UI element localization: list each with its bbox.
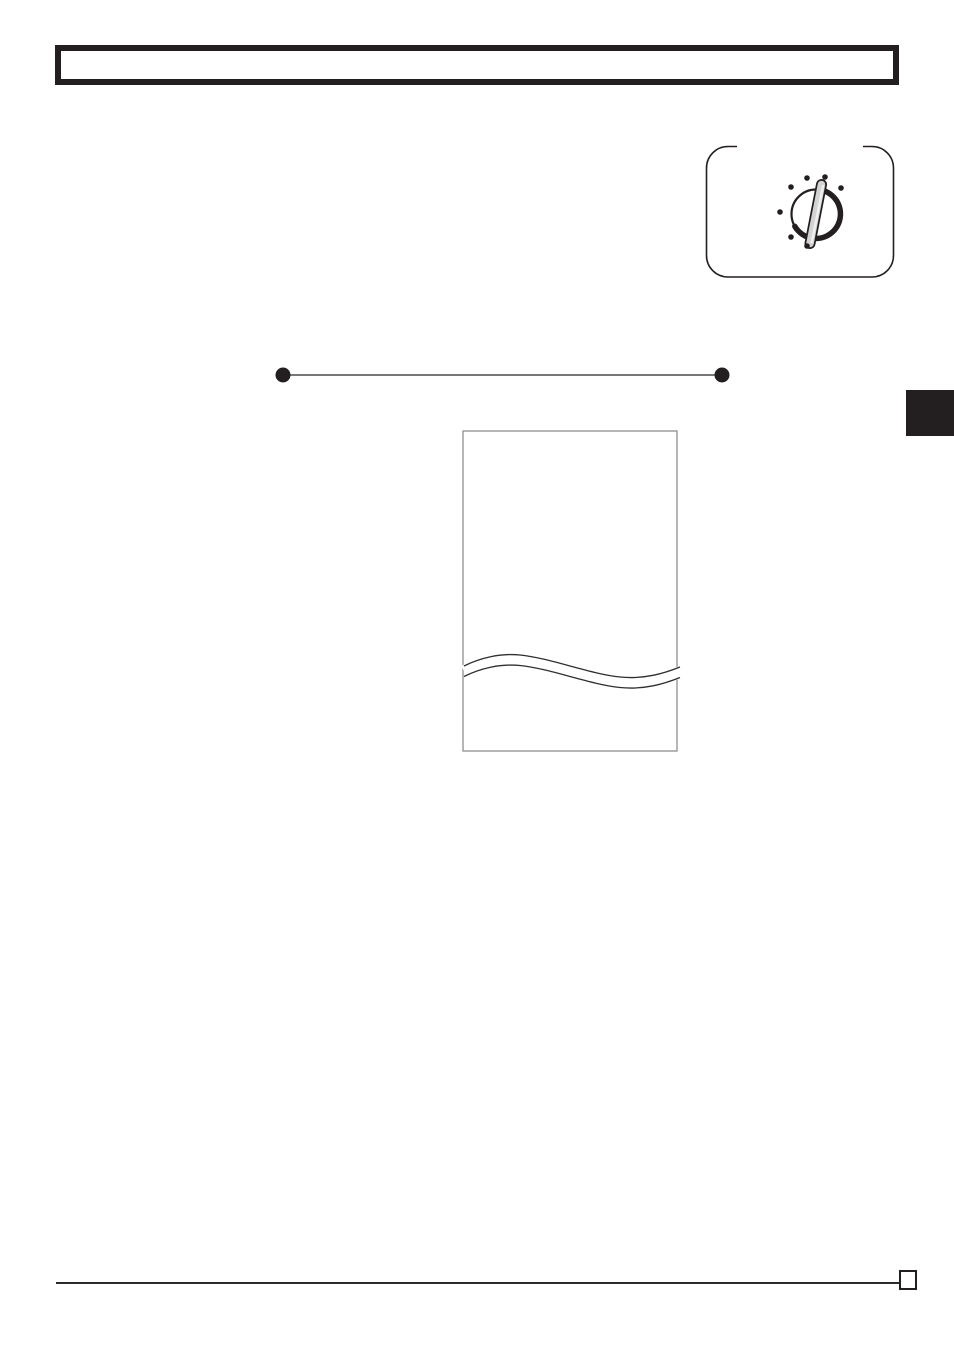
divider-right-bullet	[715, 368, 730, 383]
dial-marker-dot	[804, 243, 810, 249]
chapter-tab	[906, 390, 954, 436]
control-panel-figure	[705, 145, 895, 278]
dial-marker-dot	[788, 234, 794, 240]
tear-gap-mask	[464, 660, 680, 683]
bullet-divider	[270, 365, 740, 385]
dial-marker-dot	[804, 175, 810, 181]
panel-frame-outline	[707, 147, 894, 278]
page-number-box	[899, 1270, 917, 1290]
page-outline-rect	[463, 431, 677, 751]
dial-marker-dot	[777, 209, 783, 215]
header-title-box	[55, 45, 899, 85]
torn-page-figure	[455, 420, 695, 760]
dial-marker-dot	[788, 184, 794, 190]
divider-left-bullet	[276, 368, 291, 383]
document-page	[0, 0, 954, 1349]
footer-rule	[56, 1282, 899, 1284]
dial-marker-dot	[822, 174, 828, 180]
dial-marker-dot	[838, 185, 844, 191]
